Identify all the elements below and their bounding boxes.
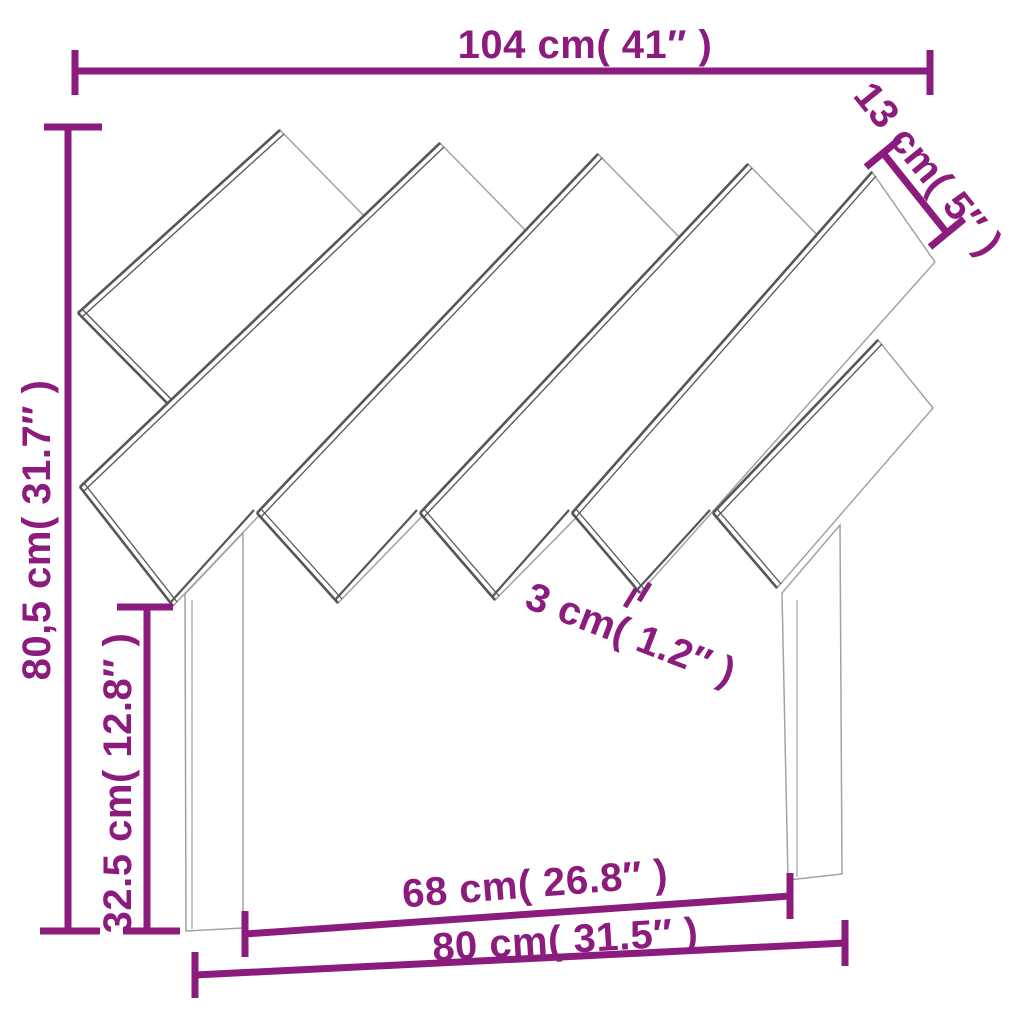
right-leg <box>782 525 842 880</box>
label-total-width: 104 cm( 41″ ) <box>458 23 713 67</box>
slats <box>78 130 935 606</box>
label-slat-gap: 3 cm( 1.2″ ) <box>520 574 742 694</box>
headboard-drawing: 104 cm( 41″ ) 13 cm( 5″ ) 80,5 cm( 31.7″… <box>0 0 1024 1024</box>
left-leg <box>185 533 243 931</box>
dim-gap-tick-left <box>625 589 636 607</box>
label-leg-height: 32.5 cm( 12.8″ ) <box>96 633 140 934</box>
label-total-height: 80,5 cm( 31.7″ ) <box>15 380 59 681</box>
dimension-diagram: 104 cm( 41″ ) 13 cm( 5″ ) 80,5 cm( 31.7″… <box>0 0 1024 1024</box>
